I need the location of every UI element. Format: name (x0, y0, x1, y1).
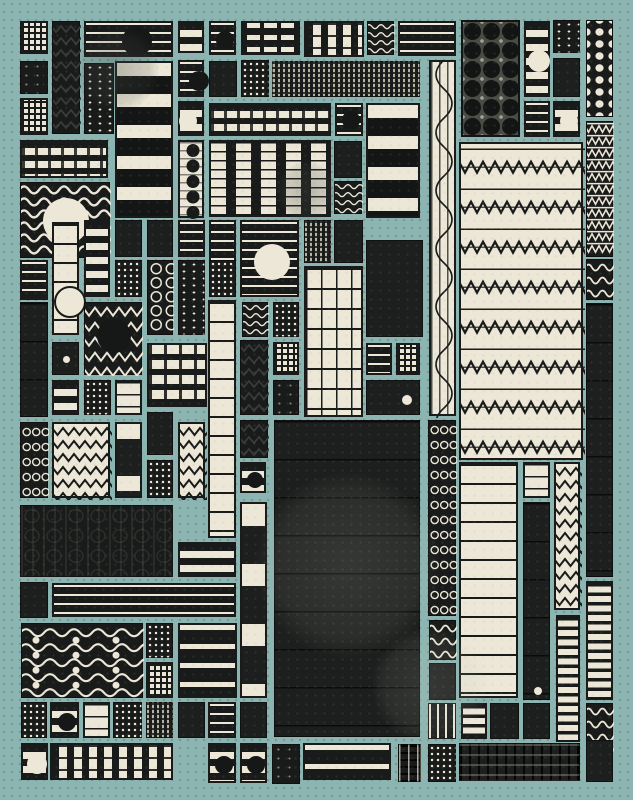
tile-circle-cream (179, 112, 197, 130)
tile-circle-cream (63, 356, 70, 363)
mosaic-tile-we (20, 140, 108, 178)
mosaic-tile-hb (84, 220, 110, 297)
mosaic-tile-hc (115, 380, 142, 415)
mosaic-tile-wef (146, 702, 173, 738)
mosaic-tile-dsp (273, 380, 299, 415)
generative-mosaic-canvas (0, 0, 633, 800)
mosaic-tile-dd (178, 702, 205, 738)
mosaic-tile-blk2 (241, 21, 300, 55)
mosaic-tile-dd (115, 220, 142, 257)
mosaic-tile-hc (83, 702, 110, 738)
mosaic-tile-fgd (209, 260, 236, 297)
tile-circle-ink (216, 31, 234, 49)
mosaic-tile-dd (490, 703, 519, 739)
mosaic-tile-hb (52, 380, 79, 415)
mosaic-tile-fgd (113, 702, 142, 738)
tile-circle-ink (122, 26, 152, 56)
mosaic-tile-hd (178, 220, 205, 257)
mosaic-tile-wef (272, 61, 420, 97)
mosaic-tile-hd (240, 220, 299, 297)
mosaic-tile-sv (429, 60, 456, 416)
mosaic-tile-wef (304, 220, 331, 263)
mosaic-tile-wvf (334, 181, 362, 214)
mosaic-tile-hd (209, 220, 236, 263)
mosaic-tile-fg (396, 343, 420, 375)
mosaic-tile-dd (147, 220, 173, 257)
mosaic-tile-hd (178, 60, 204, 97)
mosaic-tile-hcd (586, 581, 613, 700)
mosaic-tile-hd (209, 21, 236, 55)
mosaic-tile-we (209, 103, 331, 136)
mosaic-tile-dd (553, 58, 580, 97)
mosaic-tile-dd (366, 380, 420, 415)
mosaic-tile-hb (21, 743, 48, 780)
mosaic-tile-hd (84, 21, 173, 57)
tile-circle-ink (215, 756, 233, 774)
mosaic-tile-fg (273, 342, 299, 375)
tile-circle-ink (189, 71, 209, 91)
mosaic-tile-hd (20, 260, 48, 300)
mosaic-tile-vdl (398, 744, 421, 782)
mosaic-tile-beads (178, 140, 204, 218)
mosaic-tile-bd (461, 20, 520, 137)
mosaic-tile-wzb (459, 142, 583, 460)
mosaic-tile-rings (147, 260, 173, 335)
mosaic-tile-fgd (84, 380, 111, 415)
mosaic-tile-hbw (366, 103, 420, 218)
mosaic-tile-fg (20, 21, 48, 54)
mosaic-tile-dd (429, 663, 456, 700)
mosaic-tile-zzd (240, 340, 268, 415)
mosaic-tile-ddl (586, 303, 613, 577)
mosaic-tile-vd (178, 260, 205, 335)
mosaic-tile-dsp (20, 61, 48, 94)
mosaic-tile-dd (334, 141, 362, 178)
mosaic-tile-dd (209, 61, 237, 97)
mosaic-tile-vbf (428, 703, 456, 739)
mosaic-tile-hd (52, 583, 236, 617)
tile-circle-cream (534, 687, 542, 695)
tile-circle-cream (402, 395, 412, 405)
mosaic-tile-zzd (52, 21, 80, 134)
mosaic-tile-dd (147, 412, 173, 455)
mosaic-tile-hc (523, 462, 550, 498)
mosaic-tile-hd (398, 21, 456, 56)
tile-circle-ink (247, 756, 265, 774)
tile-circle-outline (54, 286, 86, 318)
mosaic-tile-hb (240, 462, 266, 493)
mosaic-tile-cg (304, 266, 363, 417)
mosaic-tile-wvs (586, 259, 613, 300)
mosaic-tile-hd (524, 101, 550, 137)
mosaic-tile-hb (178, 542, 236, 577)
mosaic-tile-fgd (241, 60, 269, 97)
mosaic-tile-hd2 (178, 623, 237, 698)
mosaic-tile-hb (524, 21, 550, 97)
mosaic-tile-hd2 (303, 743, 391, 780)
mosaic-tile-vwe (304, 21, 364, 57)
mosaic-tile-hd (335, 103, 363, 136)
mosaic-tile-vbk (115, 422, 142, 498)
mosaic-tile-pd (586, 20, 613, 117)
mosaic-tile-hb (553, 101, 580, 137)
mosaic-tile-hb (50, 702, 79, 738)
tile-circle-cream (254, 244, 290, 280)
mosaic-tile-hbw (115, 61, 173, 218)
mosaic-tile-dd (20, 582, 48, 618)
mosaic-tile-ddr (459, 743, 580, 781)
mosaic-tile-hct (459, 462, 518, 698)
mosaic-tile-fgd (273, 302, 299, 337)
mosaic-tile-hcd (461, 703, 487, 739)
mosaic-tile-dd (523, 703, 550, 739)
mosaic-tile-hct (208, 300, 236, 538)
mosaic-tile-bwd (20, 505, 173, 577)
mosaic-tile-ddb (274, 420, 420, 737)
mosaic-tile-vwe (50, 743, 173, 780)
mosaic-tile-hb (208, 743, 236, 783)
tile-circle-cream (27, 754, 47, 774)
mosaic-tile-hcd (556, 615, 580, 742)
mosaic-tile-fgd (115, 260, 142, 297)
mosaic-tile-wvf (242, 302, 268, 337)
tile-circle-ink (97, 319, 131, 353)
mosaic-tile-dd (52, 342, 79, 375)
mosaic-tile-dsp (272, 744, 300, 784)
mosaic-tile-hb (240, 743, 267, 783)
mosaic-tile-dd (366, 240, 423, 337)
mosaic-tile-fgd (146, 623, 173, 658)
mosaic-tile-wvw (21, 623, 143, 698)
mosaic-tile-dd (334, 220, 363, 263)
mosaic-tile-wz (52, 422, 110, 498)
mosaic-tile-fgd (428, 744, 456, 782)
mosaic-tile-vdc (209, 140, 331, 217)
mosaic-tile-fg (20, 98, 48, 135)
mosaic-tile-hb (178, 21, 204, 53)
mosaic-tile-zzd (240, 420, 268, 458)
tile-circle-cream (528, 50, 550, 72)
tile-circle-ink (247, 472, 263, 488)
mosaic-tile-dd (240, 702, 267, 738)
mosaic-tile-vbl (240, 502, 267, 698)
mosaic-tile-fg (146, 662, 173, 698)
mosaic-tile-wz (178, 422, 205, 498)
mosaic-tile-zd (84, 302, 142, 375)
mosaic-tile-dd (586, 740, 613, 782)
tile-circle-ink (342, 111, 360, 129)
mosaic-tile-wvf (367, 21, 394, 55)
mosaic-tile-chain (20, 422, 48, 498)
mosaic-tile-hd (208, 702, 236, 738)
mosaic-tile-zb (586, 121, 613, 257)
mosaic-tile-fgd (147, 460, 173, 498)
mosaic-tile-chain (428, 420, 456, 616)
mosaic-tile-wvs (429, 620, 456, 660)
mosaic-tile-vd (553, 20, 580, 53)
mosaic-tile-ddl (20, 302, 48, 417)
mosaic-tile-blk (147, 343, 207, 407)
tile-circle-cream (560, 112, 578, 130)
mosaic-tile-hb (178, 101, 204, 136)
mosaic-tile-hct (52, 222, 79, 335)
tile-circle-ink (58, 713, 76, 731)
mosaic-tile-ddl (523, 502, 550, 700)
mosaic-tile-vd (84, 63, 114, 134)
mosaic-tile-hd (366, 343, 392, 375)
mosaic-tile-wz (554, 462, 580, 610)
mosaic-tile-fgd (21, 702, 47, 738)
